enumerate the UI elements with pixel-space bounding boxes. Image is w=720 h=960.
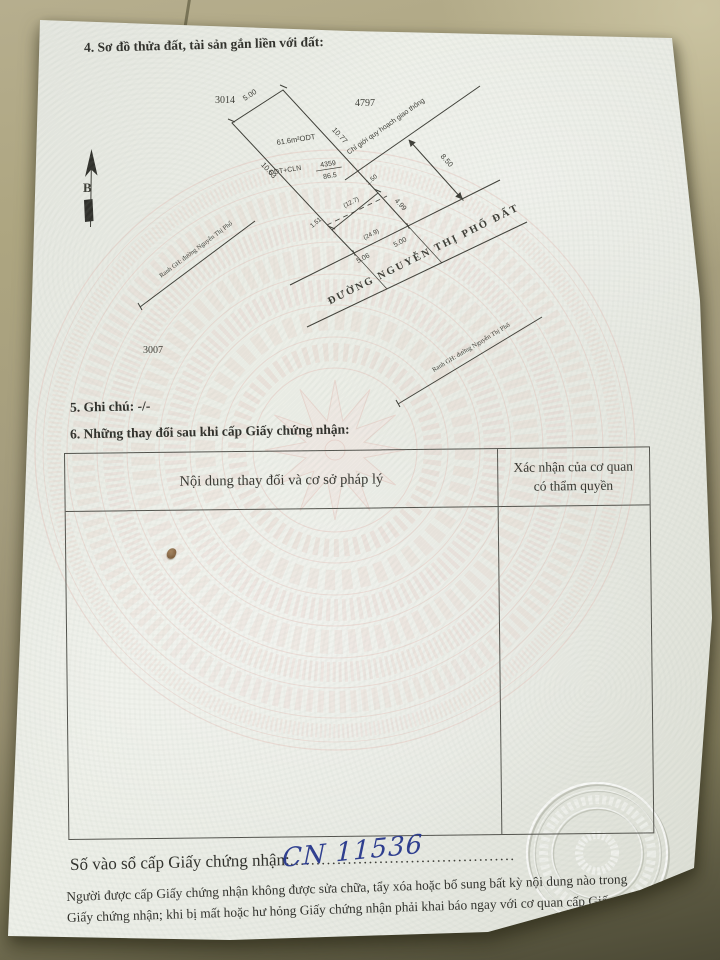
table-header-col2-line1: Xác nhận của cơ quan	[513, 458, 633, 478]
plot-number-fraction: 4359 86.5	[315, 159, 344, 182]
dashed-12.7: (12.7)	[342, 196, 360, 210]
parcel-4797: 4797	[355, 98, 375, 109]
plot-boundary	[232, 90, 378, 230]
table-header-col2-line2: có thẩm quyền	[534, 477, 614, 497]
seg-1.50: 1.50	[365, 173, 379, 187]
area-label: 61.6m²ODT	[276, 132, 317, 147]
edge-10.77: 10.77	[330, 125, 349, 145]
planned-width-arrow	[409, 140, 462, 199]
seg-4.99: 4.99	[393, 198, 407, 213]
parcel-3014: 3014	[215, 95, 235, 106]
frontage-5.00: 5.00	[393, 236, 408, 248]
parcel-3007: 3007	[143, 345, 163, 356]
registry-label: Số vào sổ cấp Giấy chứng nhận:	[70, 850, 290, 874]
registry-line: Số vào sổ cấp Giấy chứng nhận:..........…	[70, 845, 516, 875]
table-header-col2: Xác nhận của cơ quan có thẩm quyền	[497, 447, 650, 507]
plot-area: 86.5	[323, 172, 338, 181]
section4-title: 4. Sơ đồ thửa đất, tài sản gắn liền với …	[84, 34, 324, 56]
plot-number: 4359	[320, 160, 337, 169]
plot-diagram: B 3014 4797 3007 5.00 10.77 10	[55, 75, 575, 435]
paper-wrapper: 4. Sơ đồ thửa đất, tài sản gắn liền với …	[0, 0, 720, 960]
north-label: B	[83, 180, 92, 195]
edge-5.00: 5.00	[241, 87, 258, 103]
section5-title: 5. Ghi chú: -/-	[70, 398, 151, 415]
photo-of-land-certificate: { "document": { "section4_title": "4. Sơ…	[0, 0, 720, 960]
boundary-label-left: Ranh GH: đường Nguyễn Thị Phố	[158, 220, 234, 280]
boundary-label-right: Ranh GH: đường Nguyễn Thị Phố	[431, 321, 512, 373]
north-arrow: B	[83, 149, 98, 227]
footer-warning: Người được cấp Giấy chứng nhận không đượ…	[66, 867, 659, 928]
planned-width-8.50: 8.50	[439, 152, 455, 169]
table-header-col1: Nội dung thay đổi và cơ sở pháp lý	[65, 449, 498, 512]
certificate-page: 4. Sơ đồ thửa đất, tài sản gắn liền với …	[0, 0, 720, 960]
changes-table: Nội dung thay đổi và cơ sở pháp lý Xác n…	[64, 446, 654, 840]
dashed-24.9: (24.9)	[362, 228, 380, 242]
